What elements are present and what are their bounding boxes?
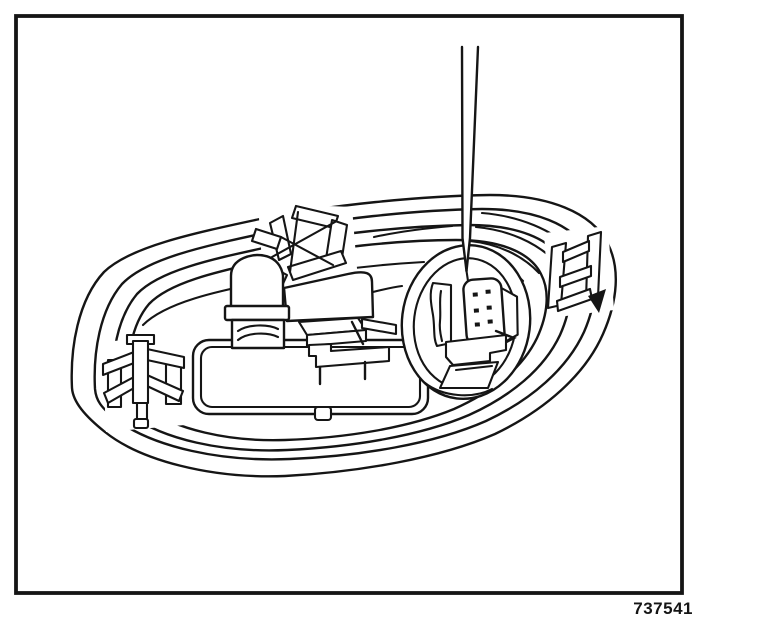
figure-number: 737541: [633, 599, 693, 618]
bulb-dome: [231, 255, 283, 308]
connector-terminal: [474, 308, 479, 312]
clip-pin: [137, 403, 147, 420]
connector-terminal: [487, 305, 492, 309]
retaining-clip-left: [102, 334, 196, 432]
technical-illustration: 737541: [0, 0, 768, 642]
connector-terminal: [485, 289, 490, 293]
blade-tip: [467, 271, 469, 281]
bulb-assembly: [225, 255, 289, 348]
retaining-clip-right: [544, 226, 614, 318]
clip-foot: [134, 419, 148, 428]
clip-post: [133, 341, 148, 403]
bulb-collar: [225, 306, 289, 320]
figure-page: 737541: [0, 0, 768, 642]
platform-tab: [315, 407, 331, 420]
connector-terminal: [488, 319, 493, 323]
connector-terminal: [473, 292, 478, 296]
connector-terminal: [475, 322, 480, 326]
